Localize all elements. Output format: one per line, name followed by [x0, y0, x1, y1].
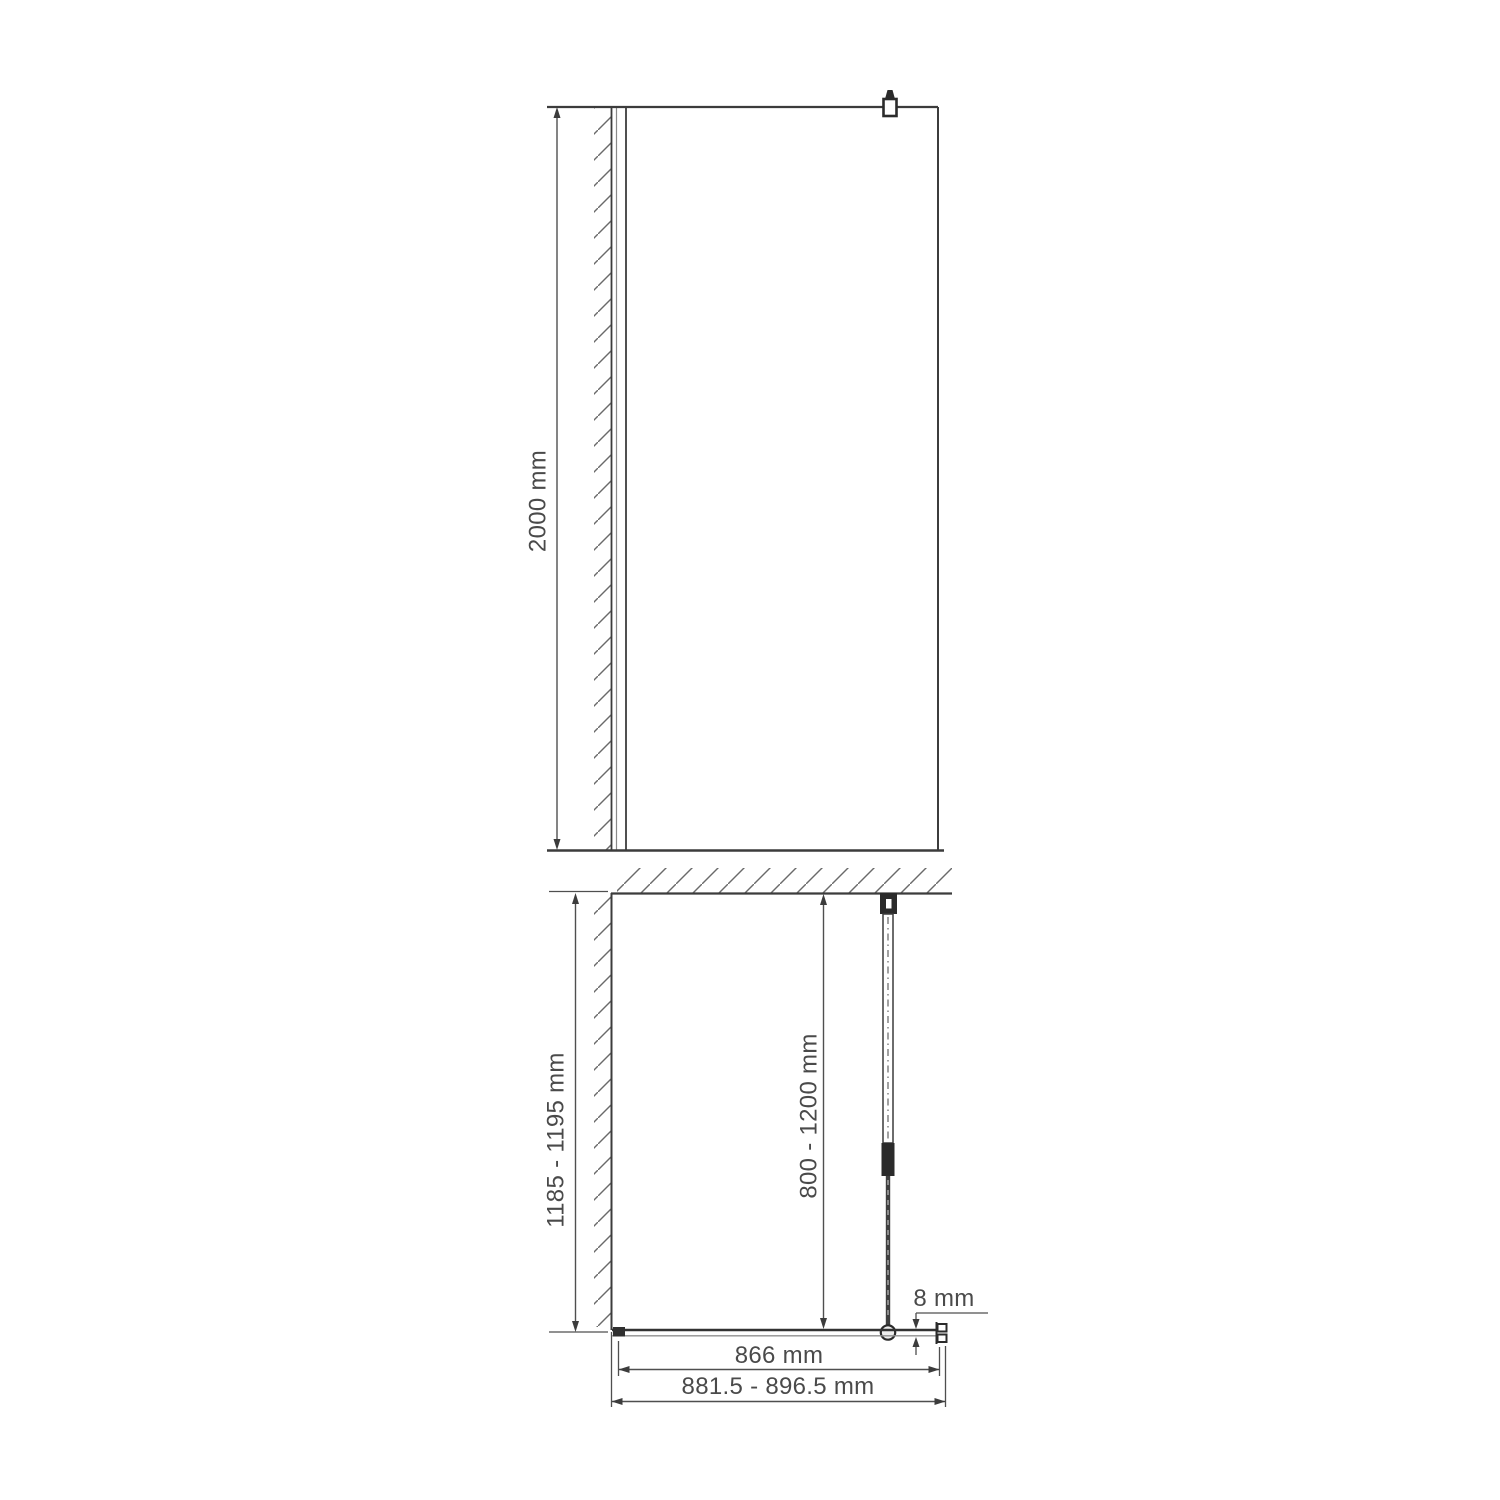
- wall-hatch-plan-left: [594, 893, 611, 1327]
- glass-end-cap-icon: [937, 1322, 947, 1344]
- dimension-glass-width: 866 mm: [619, 1341, 940, 1376]
- support-bracket-icon: [884, 90, 897, 116]
- bar-joint: [882, 1143, 895, 1176]
- bar-length-label: 800 - 1200 mm: [796, 1033, 823, 1198]
- support-bar: [880, 893, 897, 1340]
- technical-drawing-page: 2000 mm 1185 - 1195 mm 800 - 1200 mm: [0, 0, 1500, 1500]
- bar-glass-fitting-icon: [881, 1325, 895, 1339]
- installation-width-label: 881.5 - 896.5 mm: [682, 1373, 875, 1400]
- wall-profile-plan: [613, 1327, 625, 1337]
- wall-profile-front: [612, 107, 627, 850]
- dimension-panel-height: 2000 mm: [525, 107, 561, 850]
- wall-hatch-front: [594, 107, 611, 850]
- glass-thickness-label: 8 mm: [913, 1285, 974, 1312]
- dimension-bar-length: 800 - 1200 mm: [796, 894, 828, 1329]
- plan-view: 1185 - 1195 mm 800 - 1200 mm: [543, 868, 989, 1407]
- front-view: 2000 mm: [525, 90, 945, 851]
- panel-height-label: 2000 mm: [525, 450, 552, 552]
- depth-label: 1185 - 1195 mm: [543, 1052, 570, 1227]
- wall-hatch-plan-top: [617, 868, 952, 893]
- glass-width-label: 866 mm: [735, 1342, 824, 1369]
- dimension-glass-thickness: 8 mm: [913, 1285, 989, 1355]
